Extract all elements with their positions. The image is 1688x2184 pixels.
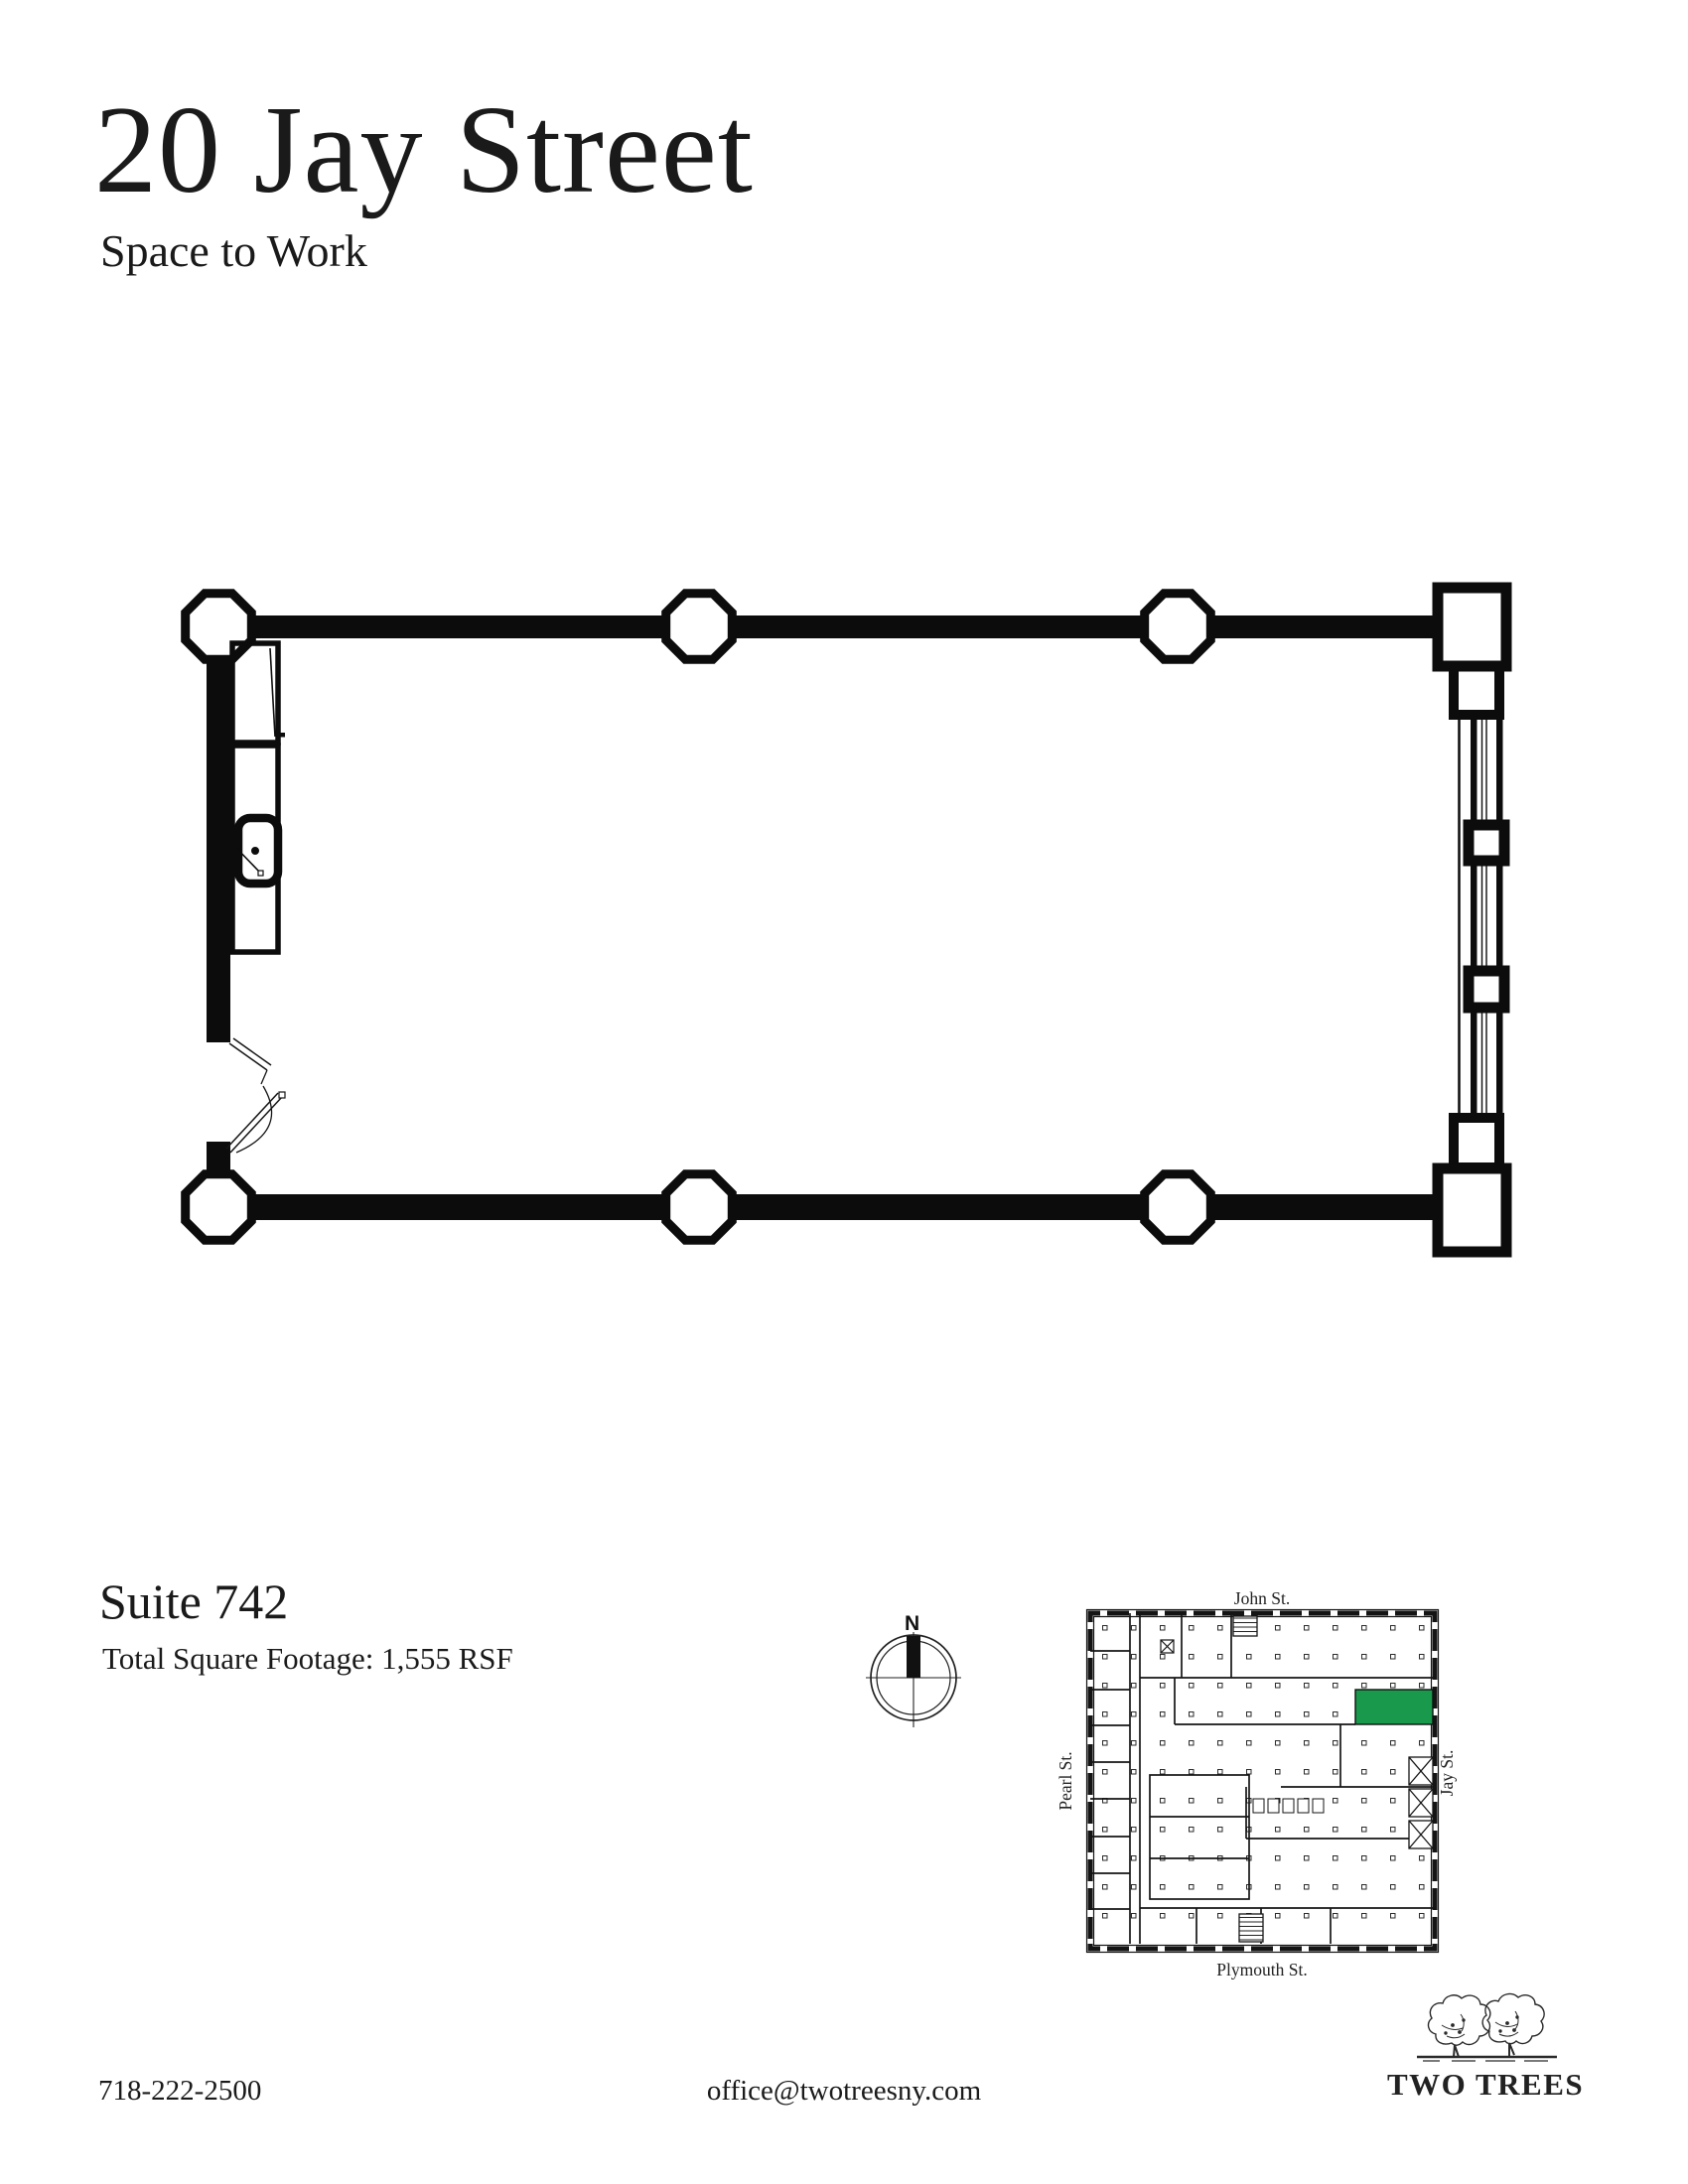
window-wall — [1454, 660, 1504, 1176]
elevator-bank — [1409, 1757, 1433, 1848]
wall-left — [207, 645, 230, 1042]
mullion-block — [1454, 665, 1499, 715]
mullion-block — [1469, 971, 1504, 1008]
north-arrow — [907, 1636, 920, 1678]
two-trees-logo-text: TWO TREES — [1387, 2067, 1584, 2103]
closet-unit — [227, 643, 285, 952]
suite-square-footage: Total Square Footage: 1,555 RSF — [102, 1641, 513, 1677]
page-title: 20 Jay Street — [94, 85, 754, 216]
street-label-john: John St. — [1234, 1588, 1290, 1608]
suite-name: Suite 742 — [99, 1572, 288, 1630]
footer-phone: 718-222-2500 — [98, 2075, 261, 2108]
stair-hatch-bottom — [1239, 1914, 1263, 1942]
octagon-columns — [186, 594, 1211, 1241]
washroom-fixtures — [1253, 1799, 1324, 1813]
entry-door-swing — [226, 1038, 285, 1153]
suite-highlight — [1355, 1690, 1433, 1724]
wall-bottom — [220, 1194, 1462, 1220]
stair-hatch-top — [1233, 1616, 1257, 1636]
page-subtitle: Space to Work — [100, 224, 367, 277]
shaft-box — [1161, 1640, 1174, 1653]
column-square-bottom-right — [1438, 1168, 1506, 1252]
street-label-pearl: Pearl St. — [1055, 1751, 1075, 1810]
wall-top — [220, 615, 1462, 638]
flyer-page: N — [0, 0, 1688, 2184]
compass: N — [866, 1612, 961, 1727]
street-label-plymouth: Plymouth St. — [1216, 1960, 1307, 1979]
two-trees-logo-art — [1417, 1994, 1557, 2061]
mullion-block — [1454, 1118, 1499, 1167]
street-label-jay: Jay St. — [1437, 1750, 1457, 1797]
footer-email: office@twotreesny.com — [707, 2075, 981, 2108]
keyplan-map: John St. Plymouth St. Pearl St. Jay St. — [1055, 1588, 1457, 1979]
floor-plan — [186, 588, 1506, 1252]
artwork-layer: N — [0, 0, 1688, 2184]
mullion-block — [1469, 825, 1504, 861]
north-label: N — [905, 1612, 919, 1635]
column-square-top-right — [1438, 588, 1506, 666]
